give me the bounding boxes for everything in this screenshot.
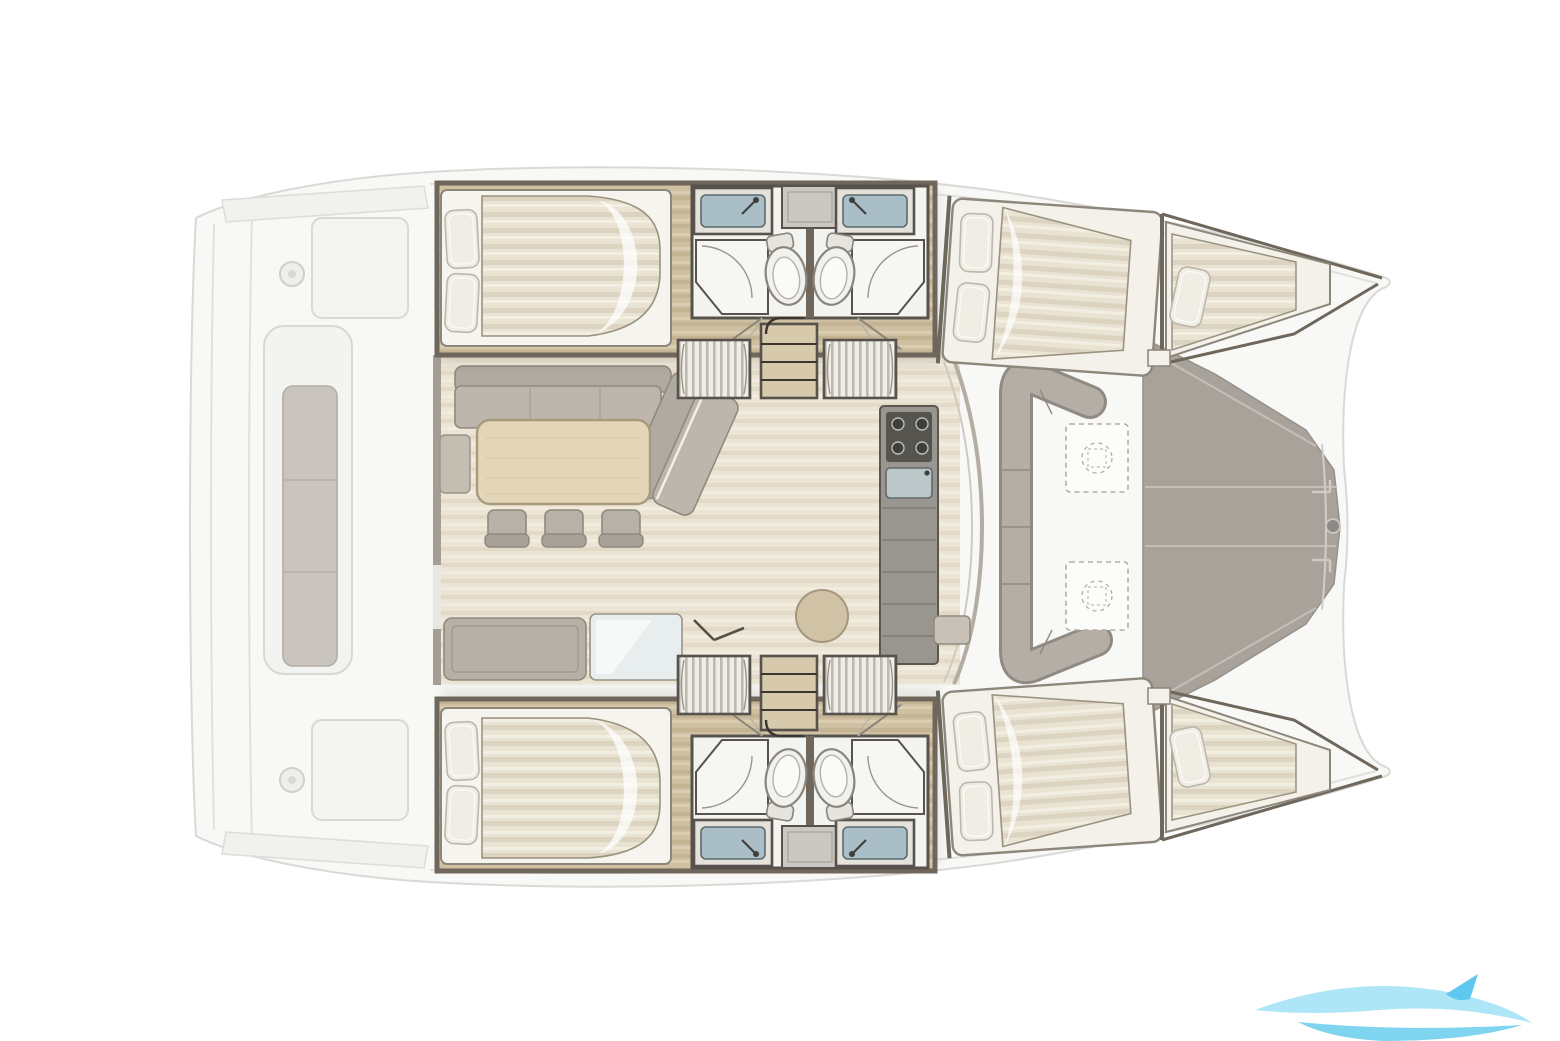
companionway-stairs: [761, 318, 817, 398]
galley-step: [934, 616, 970, 644]
pillow: [445, 209, 480, 269]
aft-cabin: [441, 190, 671, 346]
forward-cabin: [938, 196, 1163, 379]
catamaran-plan: [0, 0, 1560, 1041]
pillow: [445, 273, 480, 333]
bridle-fitting: [1326, 519, 1340, 533]
pillow: [953, 282, 991, 343]
forepeak-hatch: [1148, 350, 1170, 366]
cockpit-table-bottom: [312, 720, 408, 820]
wardrobe-aft: [678, 340, 750, 398]
wardrobe-fwd: [824, 340, 896, 398]
pillow: [959, 213, 993, 272]
sink-port-aft: [694, 188, 772, 234]
dining-chair-2: [542, 510, 586, 547]
floor-plan-canvas: [0, 0, 1560, 1041]
saloon: [433, 355, 982, 685]
folding-table-bottom: [1066, 562, 1128, 630]
watermark-wave-logo: [1255, 974, 1532, 1041]
dining-table: [477, 420, 650, 504]
dining-chair-3: [599, 510, 643, 547]
sink-port-fwd: [836, 188, 914, 234]
winch-bottom-dot: [288, 776, 296, 784]
sofa-end-table: [440, 435, 470, 493]
aft-bench: [444, 618, 586, 680]
watermark-swoosh-upper: [1255, 986, 1532, 1023]
cockpit-table-top: [312, 218, 408, 318]
watermark-swoosh-lower: [1298, 1022, 1522, 1041]
saloon-aft-door-gap: [433, 565, 441, 629]
cockpit-bench-cushion: [283, 386, 337, 666]
watermark-fin: [1446, 974, 1478, 1000]
saloon-aft-wall: [433, 355, 441, 685]
folding-table-top: [1066, 424, 1128, 492]
galley-faucet: [924, 470, 929, 475]
pouf: [796, 590, 848, 642]
winch-top-dot: [288, 270, 296, 278]
dining-chair-1: [485, 510, 529, 547]
